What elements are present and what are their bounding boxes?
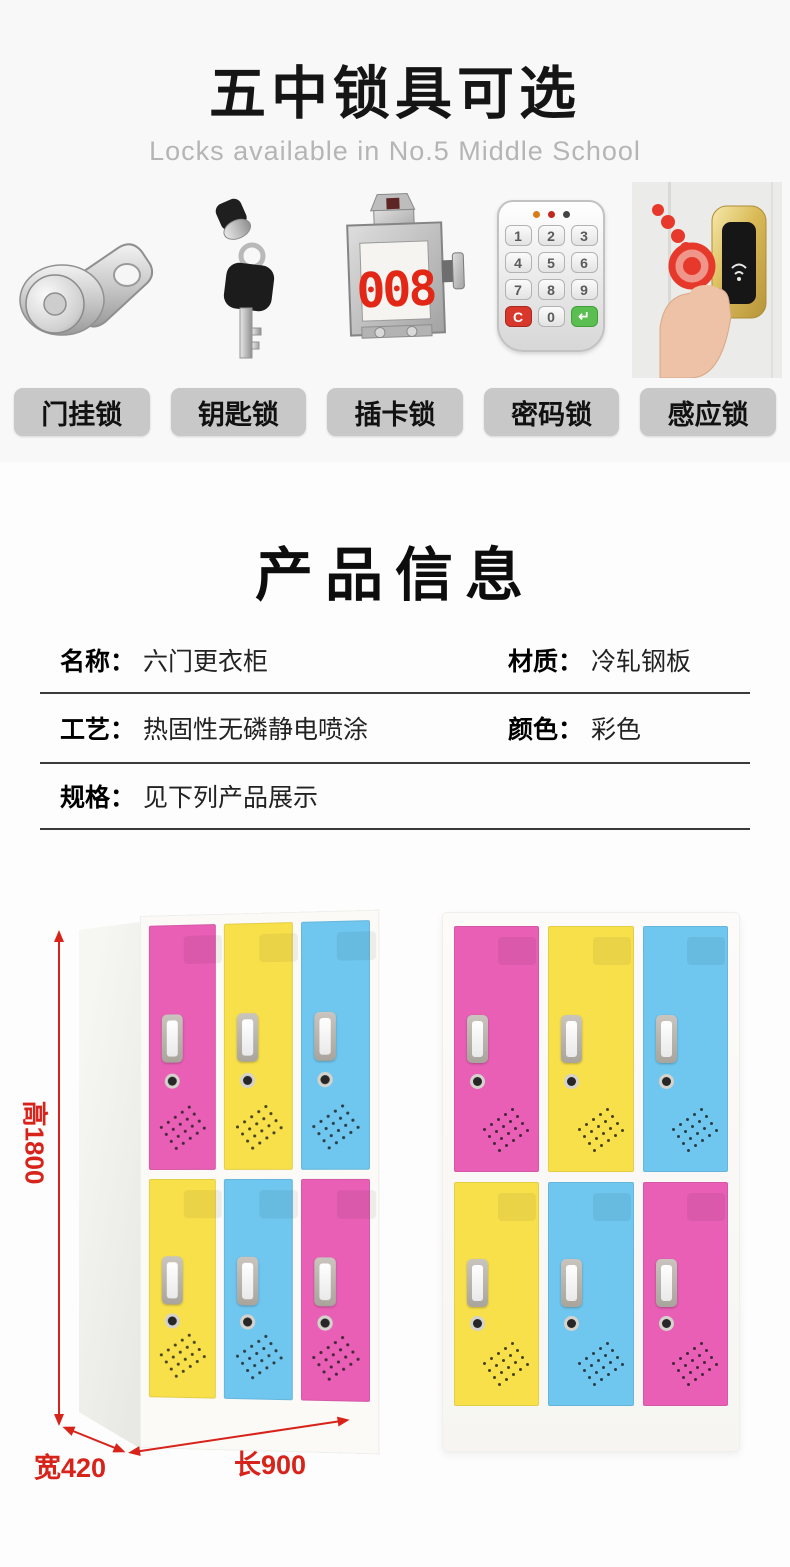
product-info-table: 名称： 六门更衣柜 材质： 冷轧钢板 工艺： 热固性无磷静电喷涂 颜色： 彩色 …: [40, 628, 750, 830]
info-cell: 材质： 冷轧钢板: [508, 642, 750, 678]
keypad-leds: [499, 202, 603, 218]
info-row: 名称： 六门更衣柜 材质： 冷轧钢板: [40, 628, 750, 694]
door-label-tag: [337, 1190, 376, 1219]
locker-door-blue: [301, 920, 370, 1170]
card-lock-icon: 008: [320, 182, 470, 378]
keyhole-icon: [168, 1316, 177, 1325]
info-row: 工艺： 热固性无磷静电喷涂 颜色： 彩色: [40, 694, 750, 764]
product-info-title: 产品信息: [0, 528, 790, 612]
length-dimension-label: 长900: [234, 1443, 306, 1482]
vent-holes: [672, 1128, 675, 1131]
keyhole-icon: [473, 1319, 482, 1328]
info-label: 名称：: [60, 642, 135, 678]
vent-holes: [672, 1362, 675, 1365]
keyhole-icon: [473, 1077, 482, 1086]
door-handle: [561, 1015, 582, 1063]
keyhole-icon: [168, 1077, 177, 1086]
led-icon: [548, 211, 555, 218]
door-handle: [237, 1013, 258, 1062]
keyhole-icon: [320, 1075, 329, 1084]
keypad-key: 4: [505, 252, 532, 273]
vent-holes: [483, 1362, 486, 1365]
locks-subtitle: Locks available in No.5 Middle School: [0, 136, 790, 167]
info-cell: 颜色： 彩色: [508, 710, 750, 746]
led-icon: [533, 211, 540, 218]
keypad-key: 3: [571, 225, 598, 246]
locker-door-pink: [454, 926, 539, 1172]
door-label-tag: [337, 931, 376, 961]
locker-door-blue: [224, 1179, 292, 1400]
lock-images-row: 008 1 2: [8, 182, 782, 378]
door-label-tag: [593, 937, 631, 965]
door-handle: [314, 1012, 336, 1061]
info-label: 工艺：: [60, 710, 135, 746]
key-lock-icon: [164, 182, 314, 378]
locker-door-yellow: [224, 922, 292, 1170]
card-lock-figure: 008: [320, 182, 470, 378]
locker-door-pink: [643, 1182, 728, 1406]
keyhole-icon: [662, 1077, 671, 1086]
product-page: 五中锁具可选 Locks available in No.5 Middle Sc…: [0, 0, 790, 1567]
lock-type-chip: 密码锁: [484, 388, 620, 436]
height-dimension-line: [58, 936, 60, 1420]
keypad-key: 6: [571, 252, 598, 273]
info-value: 热固性无磷静电喷涂: [143, 710, 368, 746]
keypad-key: 7: [505, 279, 532, 300]
vent-holes: [160, 1126, 163, 1129]
info-cell: 规格： 见下列产品展示: [40, 778, 750, 814]
locker-3d: [140, 910, 379, 1455]
locker-door-pink: [301, 1179, 370, 1402]
door-label-tag: [498, 937, 536, 965]
door-label-tag: [593, 1193, 631, 1221]
door-label-tag: [498, 1193, 536, 1221]
info-cell: 名称： 六门更衣柜: [40, 642, 508, 678]
locker-door-pink: [149, 924, 216, 1170]
lock-type-chips: 门挂锁 钥匙锁 插卡锁 密码锁 感应锁: [14, 388, 776, 436]
lock-type-chip: 插卡锁: [327, 388, 463, 436]
locker-door-blue: [643, 926, 728, 1172]
info-value: 见下列产品展示: [143, 778, 318, 814]
keypad-key: 2: [538, 225, 565, 246]
lock-type-chip: 感应锁: [640, 388, 776, 436]
locker-door-yellow: [548, 926, 633, 1172]
info-row: 规格： 见下列产品展示: [40, 764, 750, 830]
keypad-enter-key: ↵: [571, 306, 598, 327]
locker-3d-doors: [149, 920, 370, 1402]
keypad-key: 0: [538, 306, 565, 327]
keyhole-icon: [243, 1076, 252, 1085]
locker-front-doors: [454, 926, 728, 1406]
lock-type-chip: 钥匙锁: [171, 388, 307, 436]
vent-holes: [312, 1125, 315, 1128]
keyhole-icon: [567, 1077, 576, 1086]
keypad-key: 8: [538, 279, 565, 300]
door-handle: [656, 1259, 677, 1307]
vent-holes: [236, 1125, 239, 1128]
keyhole-icon: [662, 1319, 671, 1328]
locks-title: 五中锁具可选: [0, 48, 790, 130]
key-lock-figure: [164, 182, 314, 378]
led-icon: [563, 211, 570, 218]
lock-type-chip: 门挂锁: [14, 388, 150, 436]
locker-3d-side-panel: [79, 922, 141, 1449]
info-label: 规格：: [60, 778, 135, 814]
height-dimension-label: 高1800: [18, 1087, 55, 1199]
door-label-tag: [687, 937, 725, 965]
door-handle: [237, 1257, 258, 1306]
vent-holes: [160, 1353, 163, 1356]
keypad-lock-figure: 1 2 3 4 5 6 7 8 9 C 0 ↵: [476, 182, 626, 378]
vent-holes: [236, 1355, 239, 1358]
rfid-lock-icon: [632, 182, 782, 378]
door-handle: [467, 1015, 488, 1063]
cam-lock-figure: [8, 182, 158, 378]
vent-holes: [483, 1128, 486, 1131]
lock-number-display: 008: [356, 261, 436, 320]
door-handle: [162, 1256, 183, 1304]
keyhole-icon: [243, 1317, 252, 1326]
door-handle: [162, 1014, 183, 1062]
info-cell: 工艺： 热固性无磷静电喷涂: [40, 710, 508, 746]
vent-holes: [578, 1128, 581, 1131]
vent-holes: [578, 1362, 581, 1365]
locks-section: 五中锁具可选 Locks available in No.5 Middle Sc…: [0, 0, 790, 462]
info-label: 颜色：: [508, 710, 583, 746]
door-label-tag: [260, 933, 299, 962]
info-value: 冷轧钢板: [591, 642, 691, 678]
rfid-lock-figure: [632, 182, 782, 378]
door-label-tag: [184, 935, 222, 964]
keyhole-icon: [567, 1319, 576, 1328]
keypad-key: 5: [538, 252, 565, 273]
info-label: 材质：: [508, 642, 583, 678]
width-dimension-line: [68, 1428, 121, 1451]
info-value: 彩色: [591, 710, 641, 746]
keypad-keys: 1 2 3 4 5 6 7 8 9 C 0 ↵: [499, 225, 603, 327]
locker-door-yellow: [454, 1182, 539, 1406]
keypad-key: 1: [505, 225, 532, 246]
door-handle: [314, 1257, 336, 1306]
length-dimension-line: [134, 1420, 344, 1453]
door-handle: [561, 1259, 582, 1307]
keypad-clear-key: C: [505, 306, 532, 327]
door-handle: [467, 1259, 488, 1307]
keypad-lock-icon: 1 2 3 4 5 6 7 8 9 C 0 ↵: [497, 200, 605, 352]
door-label-tag: [260, 1190, 299, 1218]
vent-holes: [312, 1356, 315, 1359]
width-dimension-label: 宽420: [34, 1446, 106, 1485]
keypad-key: 9: [571, 279, 598, 300]
locker-door-blue: [548, 1182, 633, 1406]
keyhole-icon: [320, 1318, 329, 1327]
door-label-tag: [687, 1193, 725, 1221]
locker-door-yellow: [149, 1179, 216, 1399]
locker-front-view: [442, 912, 740, 1452]
door-handle: [656, 1015, 677, 1063]
info-value: 六门更衣柜: [143, 642, 268, 678]
door-label-tag: [184, 1190, 222, 1218]
cam-lock-icon: [8, 182, 158, 378]
